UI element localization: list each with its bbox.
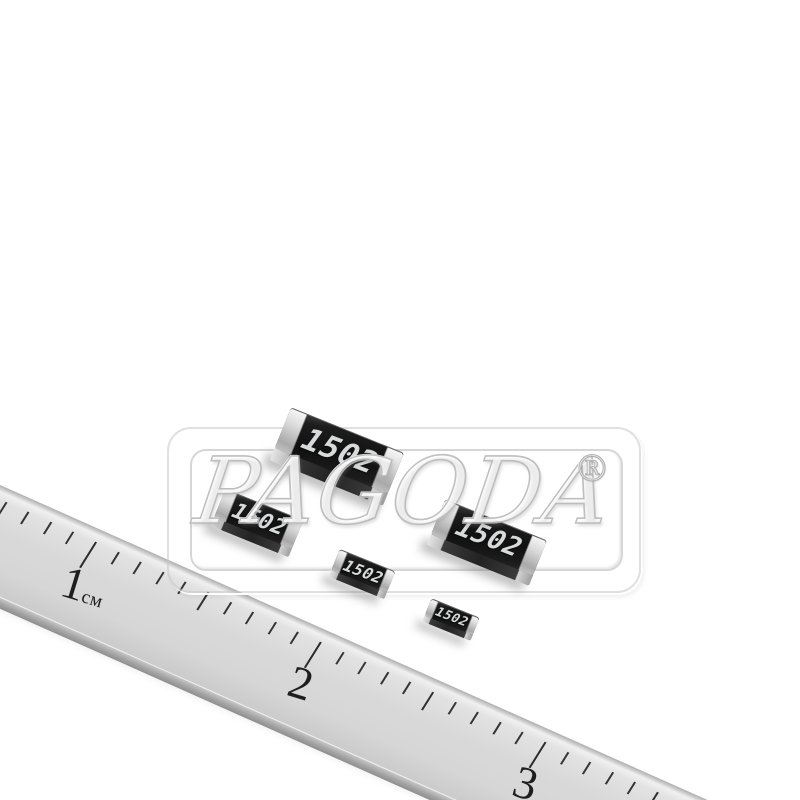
resistor-chip: 1502 — [422, 598, 480, 641]
product-photo: 1см 2 3 15021502150215021502 PAGODA ® — [0, 0, 800, 800]
